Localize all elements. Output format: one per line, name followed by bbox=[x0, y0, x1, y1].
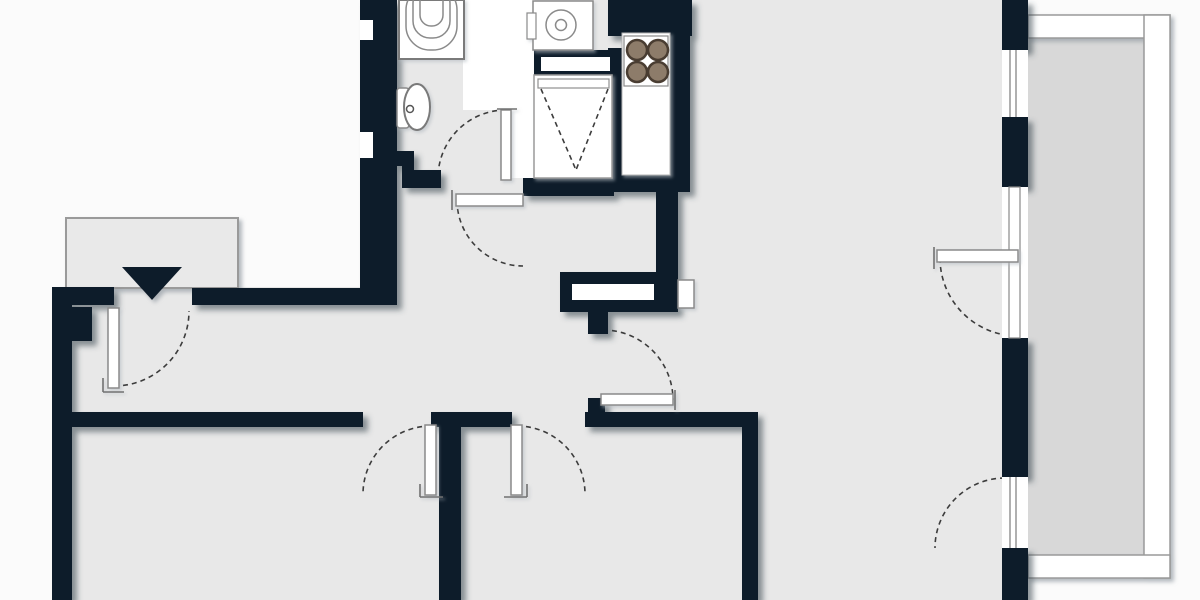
radiator bbox=[678, 280, 694, 308]
living-door-leaf bbox=[601, 394, 673, 405]
wall-living-left bbox=[742, 412, 758, 600]
shelf-slot bbox=[541, 57, 610, 71]
utility-white-door-area bbox=[511, 110, 535, 178]
wall-bottom-right bbox=[585, 412, 758, 427]
washing-machine-drawer bbox=[527, 13, 536, 39]
wall-hall-long bbox=[68, 412, 363, 427]
wall-notch-1 bbox=[360, 20, 373, 40]
wall-bath-z3 bbox=[402, 170, 441, 188]
closet bbox=[534, 75, 612, 178]
hall-door-leaf bbox=[456, 194, 523, 206]
stove-burner-1 bbox=[627, 40, 647, 60]
bathroom-door-leaf bbox=[501, 110, 511, 180]
floorplan-canvas bbox=[0, 0, 1200, 600]
closet-shelf bbox=[538, 79, 609, 88]
balcony-rail-bottom bbox=[1028, 555, 1170, 578]
wall-right-3 bbox=[1002, 338, 1028, 477]
wall-hall-top bbox=[192, 288, 368, 305]
entrance-door-leaf bbox=[108, 308, 119, 388]
floor-balcony bbox=[1028, 38, 1144, 555]
wall-right-1 bbox=[1002, 0, 1028, 50]
wall-notch-2 bbox=[360, 132, 373, 158]
window-2 bbox=[1002, 477, 1028, 548]
washing-machine-hub bbox=[556, 20, 567, 31]
wall-stub-upper bbox=[588, 312, 608, 334]
wall-right-2 bbox=[1002, 117, 1028, 187]
window-1 bbox=[1002, 50, 1028, 117]
wall-room-divider bbox=[439, 412, 461, 600]
niche-slot bbox=[572, 284, 654, 300]
balcony-rail-right bbox=[1144, 15, 1170, 578]
wall-step bbox=[72, 307, 92, 341]
wall-utility-bottom bbox=[523, 178, 614, 196]
floorplan-svg bbox=[0, 0, 1200, 600]
room1-door-leaf bbox=[425, 425, 436, 495]
wall-right-4 bbox=[1002, 548, 1028, 600]
toilet-flush-dot bbox=[407, 106, 414, 113]
stove-burner-2 bbox=[648, 40, 668, 60]
room2-door-leaf bbox=[511, 425, 522, 495]
stove-burner-3 bbox=[627, 62, 647, 82]
utility-white-area bbox=[463, 0, 535, 110]
wall-exterior-left bbox=[52, 287, 72, 600]
floor-living-room bbox=[692, 0, 1002, 600]
balcony-door-leaf bbox=[937, 250, 1018, 262]
floor-hall-left bbox=[52, 287, 362, 600]
stove-burner-4 bbox=[648, 62, 668, 82]
